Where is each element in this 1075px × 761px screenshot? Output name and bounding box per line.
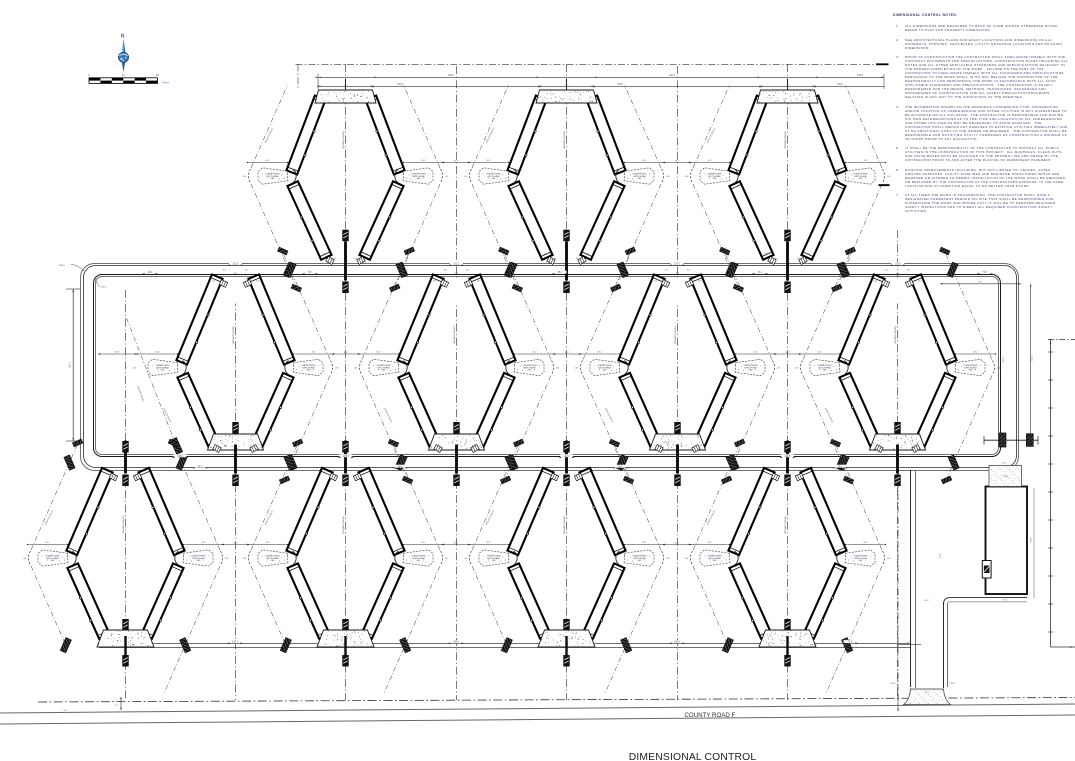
svg-text:PAD: PAD [197,559,201,562]
svg-text:105.0: 105.0 [674,642,680,644]
svg-text:PAD: PAD [713,177,717,180]
svg-text:8.0: 8.0 [444,269,447,271]
svg-text:14.6: 14.6 [464,558,468,560]
svg-text:148.0: 148.0 [177,456,183,458]
svg-text:148.2: 148.2 [453,642,459,644]
svg-text:105.0: 105.0 [343,456,349,458]
svg-text:8.0: 8.0 [466,269,469,271]
svg-text:14.6: 14.6 [464,176,468,178]
svg-text:PAD: PAD [749,369,753,372]
svg-text:11.0: 11.0 [433,281,436,283]
svg-text:140.1: 140.1 [669,75,675,77]
svg-text:(PRIVATE DRIVE): (PRIVATE DRIVE) [563,131,566,149]
svg-text:R28.0: R28.0 [59,265,65,267]
svg-text:PAD: PAD [417,177,421,180]
svg-text:14.6: 14.6 [685,176,689,178]
svg-text:PAD: PAD [417,559,421,562]
svg-text:76.5: 76.5 [848,642,853,644]
svg-text:14.6: 14.6 [666,558,670,560]
svg-text:14.6: 14.6 [887,176,891,178]
svg-text:14.6: 14.6 [133,368,137,370]
svg-text:20.0: 20.0 [565,261,569,263]
svg-text:105.0: 105.0 [674,264,680,266]
svg-text:14.6: 14.6 [795,368,799,370]
svg-text:8.0: 8.0 [687,269,690,271]
svg-text:28.0: 28.0 [148,272,153,274]
svg-text:105.2: 105.2 [397,84,403,86]
svg-text:14.0: 14.0 [698,281,702,283]
svg-text:14.6: 14.6 [777,368,781,370]
svg-text:PAD: PAD [382,369,386,372]
svg-text:26.1: 26.1 [234,273,238,275]
svg-text:102.1: 102.1 [453,264,459,266]
svg-text:14.6: 14.6 [243,558,247,560]
svg-text:(PRIVATE DRIVE): (PRIVATE DRIVE) [232,326,235,344]
svg-text:76.1: 76.1 [198,466,203,468]
svg-text:PAD: PAD [271,177,275,180]
svg-text:76.7: 76.7 [308,272,313,274]
svg-text:PAD: PAD [161,369,165,372]
svg-text:PAD: PAD [823,369,827,372]
svg-text:11.0: 11.0 [586,254,589,256]
svg-text:28.0: 28.0 [398,466,403,468]
svg-text:11.0: 11.0 [874,281,877,283]
svg-text:PAD: PAD [271,559,275,562]
svg-text:25.1: 25.1 [925,692,929,694]
svg-text:(PRIVATE DRIVE): (PRIVATE DRIVE) [563,516,566,534]
svg-text:DIMENSIONAL CONTROL: DIMENSIONAL CONTROL [629,752,757,761]
svg-text:14.6: 14.6 [445,176,449,178]
svg-text:14.6: 14.6 [354,368,358,370]
svg-text:8.0: 8.0 [885,269,888,271]
svg-text:PAD: PAD [603,369,607,372]
svg-text:(PRIVATE DRIVE): (PRIVATE DRIVE) [784,516,787,534]
svg-text:14.0: 14.0 [918,281,922,283]
svg-text:4.0: 4.0 [64,710,67,712]
svg-text:14.6: 14.6 [23,558,27,560]
svg-text:161.1: 161.1 [1032,354,1034,360]
svg-text:14.6: 14.6 [335,368,339,370]
svg-text:148.2: 148.2 [448,75,454,77]
svg-text:(PRIVATE DRIVE): (PRIVATE DRIVE) [342,516,345,534]
svg-text:R15.0: R15.0 [101,287,107,289]
svg-text:PAD: PAD [51,559,55,562]
svg-text:14.0: 14.0 [323,254,327,256]
svg-text:105.0: 105.0 [617,84,623,86]
svg-text:Feet: Feet [163,80,169,84]
svg-text:35.1: 35.1 [838,466,843,468]
svg-text:20.0: 20.0 [786,261,790,263]
svg-text:27.2A: 27.2A [1002,475,1008,478]
svg-text:14.6: 14.6 [575,368,579,370]
svg-text:148.6: 148.6 [785,456,791,458]
svg-text:PAD: PAD [638,177,642,180]
svg-text:14.0: 14.0 [256,281,260,283]
svg-text:(PRIVATE DRIVE): (PRIVATE DRIVE) [342,131,345,149]
svg-text:8.0: 8.0 [907,269,910,271]
svg-text:14.6: 14.6 [225,558,229,560]
svg-text:26.1: 26.1 [455,273,459,275]
svg-text:105.0: 105.0 [233,264,239,266]
svg-text:11.0: 11.0 [807,254,810,256]
svg-text:14.6: 14.6 [243,176,247,178]
svg-text:14.6: 14.6 [685,558,689,560]
svg-text:11.0: 11.0 [365,254,368,256]
svg-text:14.0: 14.0 [477,281,481,283]
svg-text:26.1: 26.1 [676,273,680,275]
svg-text:14.6: 14.6 [556,368,560,370]
svg-text:14.0: 14.0 [544,254,548,256]
svg-text:8.0: 8.0 [223,269,226,271]
svg-text:14.6: 14.6 [997,368,1001,370]
svg-text:N: N [121,34,125,40]
svg-text:26.1: 26.1 [896,273,900,275]
svg-text:8.0: 8.0 [245,269,248,271]
svg-text:105.1: 105.1 [232,642,238,644]
svg-text:76.7: 76.7 [618,466,623,468]
svg-text:(PRIVATE DRIVE): (PRIVATE DRIVE) [784,131,787,149]
svg-text:35.1: 35.1 [558,272,563,274]
svg-text:PAD: PAD [492,559,496,562]
svg-text:(PRIVATE DRIVE): (PRIVATE DRIVE) [894,326,897,344]
svg-text:141.1: 141.1 [70,361,72,367]
svg-text:141.1: 141.1 [1003,356,1005,362]
svg-text:PAD: PAD [859,559,863,562]
svg-text:(PRIVATE DRIVE): (PRIVATE DRIVE) [674,326,677,344]
svg-text:PAD: PAD [492,177,496,180]
svg-text:(PRIVATE DRIVE): (PRIVATE DRIVE) [122,516,125,534]
svg-text:R15.0: R15.0 [890,683,895,685]
svg-text:105.8: 105.8 [895,264,901,266]
svg-text:14.6: 14.6 [887,558,891,560]
svg-text:105.6: 105.6 [837,84,843,86]
svg-text:102.1: 102.1 [564,456,570,458]
svg-text:11.0: 11.0 [654,281,657,283]
svg-text:76.1: 76.1 [758,272,763,274]
svg-text:(PRIVATE DRIVE): (PRIVATE DRIVE) [453,326,456,344]
svg-text:COUNTY ROAD F: COUNTY ROAD F [685,712,736,719]
svg-text:148.8: 148.8 [857,75,863,77]
svg-text:14.0: 14.0 [765,254,769,256]
svg-text:PAD: PAD [307,369,311,372]
svg-text:11.0: 11.0 [212,281,215,283]
svg-text:8.0: 8.0 [665,269,668,271]
svg-text:PAD: PAD [859,177,863,180]
svg-text:20.0: 20.0 [344,261,348,263]
svg-text:PAD: PAD [528,369,532,372]
svg-text:R15.0: R15.0 [949,683,954,685]
svg-text:PAD: PAD [713,559,717,562]
svg-text:PAD: PAD [969,369,973,372]
svg-text:PAD: PAD [638,559,642,562]
svg-text:14.6: 14.6 [445,558,449,560]
svg-text:76.7: 76.7 [983,272,988,274]
svg-text:14.6: 14.6 [666,176,670,178]
